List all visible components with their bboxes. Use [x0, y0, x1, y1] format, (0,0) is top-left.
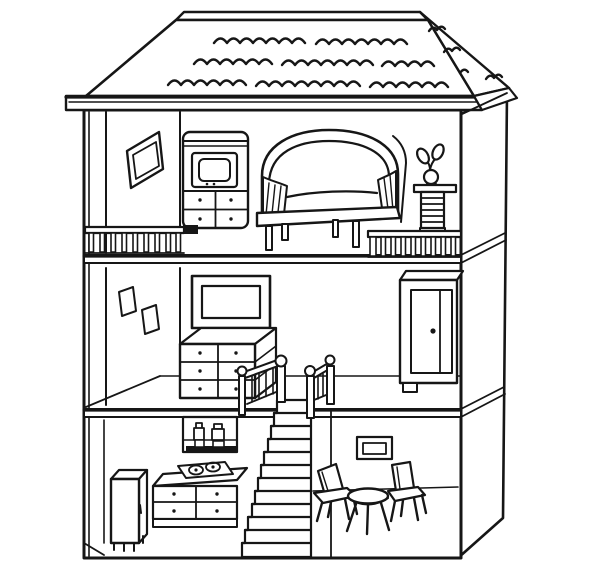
counter-base — [153, 519, 237, 527]
rail-top — [85, 227, 184, 233]
dining-picture-frame — [357, 437, 392, 459]
door-knob — [430, 328, 435, 333]
dollhouse-illustration — [0, 0, 600, 585]
tv-frame — [192, 276, 270, 328]
wardrobe-top-face — [400, 271, 463, 280]
rail-top — [368, 231, 461, 237]
wall-frame-small-1 — [119, 287, 136, 316]
television-on-dresser — [180, 276, 276, 398]
railing-end-block — [183, 225, 198, 234]
chair-back — [392, 462, 414, 491]
refrigerator — [111, 470, 147, 551]
fridge-handle — [140, 505, 141, 513]
newel-ball — [276, 356, 287, 367]
balusters — [89, 233, 181, 252]
dollhouse-drawing — [0, 0, 600, 585]
plant-pot-ball — [424, 170, 438, 184]
wardrobe-foot — [403, 383, 417, 392]
stove-slab — [178, 462, 233, 478]
end-post — [239, 376, 245, 415]
end-post — [327, 366, 334, 404]
fridge-front — [111, 479, 139, 543]
right-side-wall — [458, 93, 507, 558]
end-post-ball — [238, 367, 247, 376]
newel-ball — [305, 366, 315, 376]
end-post-ball — [326, 356, 335, 365]
wardrobe-front — [400, 280, 457, 383]
roof — [66, 12, 517, 110]
shelf-board — [186, 446, 237, 451]
newel-post — [277, 366, 285, 402]
wall-frame-small-2 — [142, 305, 159, 334]
tv-cabinet — [183, 132, 248, 228]
wardrobe — [400, 271, 463, 392]
kitchen-shelf — [183, 417, 237, 452]
newel-post — [307, 376, 314, 418]
balusters — [370, 237, 456, 256]
